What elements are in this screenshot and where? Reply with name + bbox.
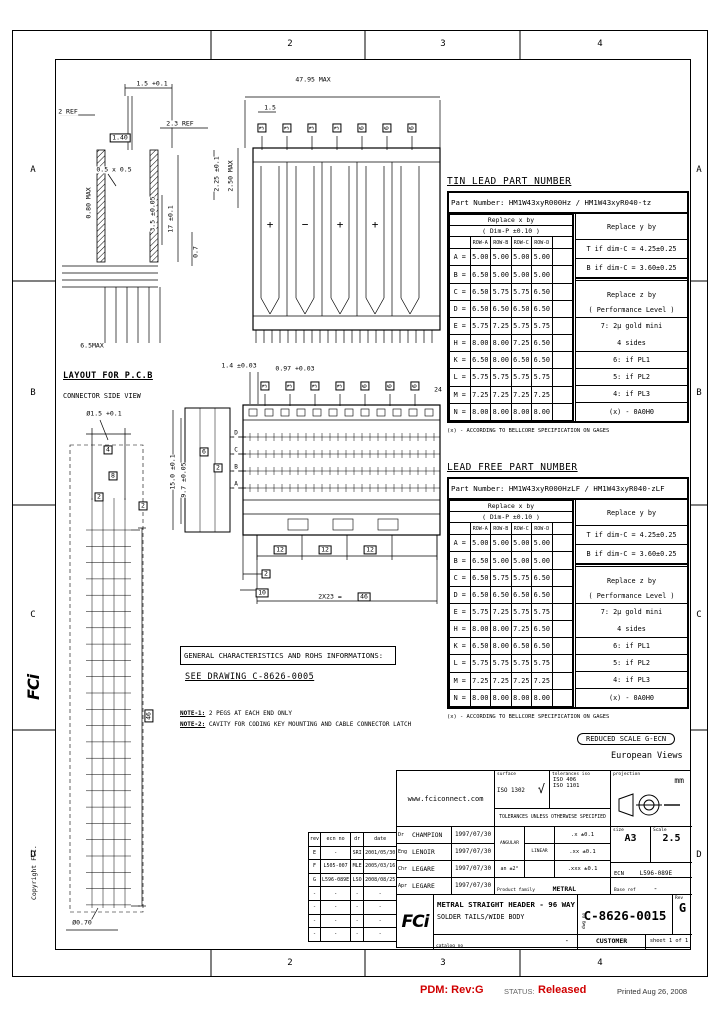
balloon-3: 3 bbox=[260, 382, 269, 391]
plating-row: 4 sides bbox=[576, 621, 687, 638]
signature-block: DrCHAMPION1997/07/30EngLENOIR1997/07/30C… bbox=[397, 827, 495, 895]
signature-date: 1997/07/30 bbox=[451, 861, 494, 877]
table-row: M =7.257.257.257.25 bbox=[450, 386, 573, 403]
table-cell: ROW-B bbox=[491, 523, 512, 535]
dim-46-vert: 46 bbox=[144, 710, 153, 723]
surface-label: surface bbox=[495, 771, 549, 777]
dim-chamfer: 0.5 x 0.5 bbox=[96, 166, 131, 173]
table-cell: L = bbox=[450, 369, 471, 386]
row-letter-c: C bbox=[234, 448, 238, 455]
zone-top-3: 3 bbox=[440, 39, 445, 49]
table-row: B =6.505.005.005.00 bbox=[450, 266, 573, 283]
table-cell: L = bbox=[450, 655, 471, 672]
plating-row: Replace z by bbox=[576, 574, 687, 589]
count-24: 24 bbox=[434, 386, 442, 393]
surface-cell: surface ISO 1302 √ bbox=[495, 771, 550, 809]
plating-row: 7: 2μ gold mini bbox=[576, 604, 687, 621]
connector-side-view-label: CONNECTOR SIDE VIEW bbox=[63, 392, 141, 400]
table-cell: 6.50 bbox=[470, 300, 491, 317]
base-ref-value: - bbox=[653, 885, 657, 893]
zone-top-4: 4 bbox=[597, 39, 602, 49]
balloon-3: 3 bbox=[335, 382, 344, 391]
european-views-label: European Views bbox=[611, 751, 683, 761]
dim-2-3-ref: 2.3 REF bbox=[166, 120, 193, 127]
table-row: M =7.257.257.257.25 bbox=[450, 672, 573, 689]
table-title: LEAD FREE PART NUMBER bbox=[447, 462, 689, 473]
website-text: www.fciconnect.com bbox=[408, 795, 484, 803]
polarity-plus-3: + bbox=[372, 219, 379, 231]
revision-header: rev bbox=[309, 833, 321, 847]
table-cell bbox=[552, 369, 573, 386]
sheet-size: A3 bbox=[611, 833, 650, 844]
rev-cell: Rev G bbox=[673, 895, 692, 935]
balloon-3: 3 bbox=[257, 124, 266, 133]
note-1-text: 2 PEGS AT EACH END ONLY bbox=[205, 710, 292, 717]
table-row: E =5.757.255.755.75 bbox=[450, 317, 573, 334]
plating-row: 4: if PL3 bbox=[576, 672, 687, 689]
revision-row: GL596-089ELSO2008/08/25 bbox=[309, 873, 397, 887]
note-2-label: NOTE-2: bbox=[180, 721, 205, 728]
revision-cell: - bbox=[351, 928, 364, 942]
table-cell: 5.75 bbox=[511, 369, 532, 386]
table-cell bbox=[450, 523, 471, 535]
revision-row: ---- bbox=[309, 914, 397, 928]
part-table-body: Replace x by( Dim-P ±0.10 )ROW-AROW-BROW… bbox=[449, 214, 687, 421]
table-row: H =8.008.007.256.50 bbox=[450, 621, 573, 638]
table-cell bbox=[552, 352, 573, 369]
catalog-value: - bbox=[565, 935, 569, 948]
table-row: D =6.506.506.506.50 bbox=[450, 586, 573, 603]
see-drawing-note: SEE DRAWING C-8626-0005 bbox=[185, 672, 314, 682]
table-cell: ROW-A bbox=[470, 237, 491, 249]
table-cell: 8.00 bbox=[491, 621, 512, 638]
revision-cell: - bbox=[364, 914, 397, 928]
ecn-label: ECN bbox=[614, 871, 624, 877]
table-cell: 5.75 bbox=[491, 655, 512, 672]
table-cell: 7.25 bbox=[491, 386, 512, 403]
bellcore-note: (x) - ACCORDING TO BELLCORE SPECIFICATIO… bbox=[447, 428, 689, 434]
revision-cell: - bbox=[351, 887, 364, 901]
signature-name: LEGARE bbox=[412, 866, 451, 873]
table-cell: C = bbox=[450, 569, 471, 586]
plating-column: Replace y byT if dim-C = 4.25±0.25B if d… bbox=[573, 214, 687, 421]
table-cell: H = bbox=[450, 335, 471, 352]
balloon-8-pcb: 8 bbox=[109, 471, 118, 480]
revision-cell: - bbox=[321, 914, 351, 928]
row-letter-d: D bbox=[234, 431, 238, 438]
signature-row: AprLEGARE1997/07/30 bbox=[397, 878, 494, 895]
signature-date: 1997/07/30 bbox=[451, 844, 494, 860]
balloon-2-pcb-2: 2 bbox=[139, 501, 148, 510]
table-cell: 5.00 bbox=[511, 535, 532, 552]
dim-0-80-max: 0.80 MAX bbox=[85, 187, 92, 218]
table-cell: 7.25 bbox=[491, 603, 512, 620]
table-cell: 5.00 bbox=[491, 535, 512, 552]
table-cell: ROW-C bbox=[511, 523, 532, 535]
dim-2-50-max: 2.50 MAX bbox=[227, 160, 234, 191]
signature-row: DrCHAMPION1997/07/30 bbox=[397, 827, 494, 844]
logo-cell: FCi bbox=[397, 895, 434, 949]
table-cell: 6.50 bbox=[511, 638, 532, 655]
projection-cell: projection mm bbox=[611, 771, 692, 827]
table-cell: A = bbox=[450, 249, 471, 266]
dim-1-40: 1.40 bbox=[110, 133, 131, 142]
dim-46-box: 46 bbox=[358, 592, 371, 601]
table-cell: 6.50 bbox=[491, 300, 512, 317]
tolerance-grid-cell bbox=[525, 861, 555, 878]
dim-12-1: 12 bbox=[274, 545, 287, 554]
balloon-6: 6 bbox=[200, 447, 209, 456]
table-cell: 5.00 bbox=[470, 249, 491, 266]
table-row: E =5.757.255.755.75 bbox=[450, 603, 573, 620]
plating-row: 4 sides bbox=[576, 335, 687, 352]
table-row: ( Dim-P ±0.10 ) bbox=[450, 512, 573, 523]
table-row: A =5.005.005.005.00 bbox=[450, 249, 573, 266]
table-cell: 5.75 bbox=[532, 603, 553, 620]
zone-right-B: B bbox=[696, 388, 701, 398]
balloon-6: 6 bbox=[410, 382, 419, 391]
part-number-row: Part Number: HM1W43xyR000Hz / HM1W43xyR0… bbox=[449, 193, 687, 214]
balloon-6: 6 bbox=[382, 124, 391, 133]
revision-header: ecn no bbox=[321, 833, 351, 847]
table-cell: 5.75 bbox=[470, 317, 491, 334]
table-cell: H = bbox=[450, 621, 471, 638]
table-cell: 5.00 bbox=[491, 266, 512, 283]
dim-9-7: 9.7 ±0.05 bbox=[180, 462, 187, 497]
table-cell: 5.75 bbox=[491, 283, 512, 300]
table-cell bbox=[552, 569, 573, 586]
table-cell: 5.75 bbox=[491, 569, 512, 586]
row-letter-a: A bbox=[234, 482, 238, 489]
plating-row bbox=[576, 278, 687, 288]
table-cell: 6.50 bbox=[470, 266, 491, 283]
table-cell: ROW-D bbox=[532, 523, 553, 535]
plating-row bbox=[576, 564, 687, 574]
dim-1-4: 1.4 ±0.03 bbox=[221, 362, 256, 369]
product-family: METRAL bbox=[553, 885, 576, 893]
table-row: ROW-AROW-BROW-CROW-D bbox=[450, 237, 573, 249]
signature-role: Dr bbox=[397, 832, 412, 838]
title-cell: METRAL STRAIGHT HEADER - 96 WAY SOLDER T… bbox=[434, 895, 578, 935]
plating-row: T if dim-C = 4.25±0.25 bbox=[576, 526, 687, 545]
third-angle-projection-icon bbox=[617, 791, 683, 821]
hole-dia-1-5: Ø1.5 +0.1 bbox=[86, 410, 121, 417]
table-row: L =5.755.755.755.75 bbox=[450, 369, 573, 386]
revision-cell: - bbox=[321, 846, 351, 860]
drawing-number: C-8626-0015 bbox=[578, 908, 672, 923]
revision-cell: F bbox=[309, 860, 321, 874]
signature-role: Eng bbox=[397, 849, 412, 855]
dwg-no-label: dwg no bbox=[582, 913, 587, 929]
dim-3-5: 3.5 ±0.05 bbox=[149, 196, 156, 231]
balloon-3: 3 bbox=[285, 382, 294, 391]
signature-role: Apr bbox=[397, 883, 412, 889]
table-cell: 8.00 bbox=[511, 403, 532, 420]
scale-cell: Scale 2.5 bbox=[651, 827, 692, 863]
table-cell: 8.00 bbox=[532, 689, 553, 706]
dim-15-0: 15.0 ±0.1 bbox=[169, 454, 176, 489]
signature-date: 1997/07/30 bbox=[451, 827, 494, 843]
table-cell bbox=[552, 317, 573, 334]
catalog-cell: catalog no - bbox=[434, 935, 578, 949]
table-cell: 6.50 bbox=[491, 586, 512, 603]
general-characteristics-note: GENERAL CHARACTERISTICS AND ROHS INFORMA… bbox=[180, 646, 396, 665]
table-row: A =5.005.005.005.00 bbox=[450, 535, 573, 552]
table-cell bbox=[552, 237, 573, 249]
table-cell: 6.50 bbox=[532, 569, 553, 586]
plating-row: Replace y by bbox=[576, 214, 687, 240]
balloon-3: 3 bbox=[282, 124, 291, 133]
row-letter-b: B bbox=[234, 465, 238, 472]
table-cell: 8.00 bbox=[470, 689, 491, 706]
table-cell: 7.25 bbox=[532, 386, 553, 403]
table-cell bbox=[552, 403, 573, 420]
zone-top-2: 2 bbox=[287, 39, 292, 49]
table-cell: 5.75 bbox=[511, 603, 532, 620]
table-cell: M = bbox=[450, 672, 471, 689]
table-cell bbox=[552, 266, 573, 283]
table-cell: 6.50 bbox=[532, 300, 553, 317]
table-cell: K = bbox=[450, 638, 471, 655]
note-2: NOTE-2: CAVITY FOR CODING KEY MOUNTING A… bbox=[180, 721, 411, 728]
zone-bottom-4: 4 bbox=[597, 958, 602, 968]
linear-tolerance: .x ±0.1 bbox=[555, 827, 611, 844]
balloon-6: 6 bbox=[360, 382, 369, 391]
revision-header: date bbox=[364, 833, 397, 847]
table-cell: M = bbox=[450, 386, 471, 403]
fci-logo: FCi bbox=[402, 912, 429, 932]
table-cell: 8.00 bbox=[491, 352, 512, 369]
table-cell: 7.25 bbox=[511, 672, 532, 689]
table-cell: C = bbox=[450, 283, 471, 300]
table-cell bbox=[552, 621, 573, 638]
table-cell bbox=[552, 523, 573, 535]
table-title: TIN LEAD PART NUMBER bbox=[447, 176, 689, 187]
table-cell: 7.25 bbox=[511, 621, 532, 638]
table-cell: 6.50 bbox=[511, 352, 532, 369]
balloon-6: 6 bbox=[357, 124, 366, 133]
tolerance-note: TOLERANCES UNLESS OTHERWISE SPECIFIED bbox=[495, 809, 611, 827]
revision-cell: 2008/08/25 bbox=[364, 873, 397, 887]
table-row: K =6.508.006.506.50 bbox=[450, 352, 573, 369]
table-cell: 6.50 bbox=[470, 352, 491, 369]
table-cell: 5.00 bbox=[532, 552, 553, 569]
pdm-rev-text: PDM: Rev:G bbox=[420, 984, 484, 996]
table-cell: 5.00 bbox=[511, 552, 532, 569]
table-cell: ROW-C bbox=[511, 237, 532, 249]
table-row: Replace x by bbox=[450, 215, 573, 226]
table-cell bbox=[552, 552, 573, 569]
revision-header-row: revecn nodrdate bbox=[309, 833, 397, 847]
dim-p-table: Replace x by( Dim-P ±0.10 )ROW-AROW-BROW… bbox=[449, 500, 573, 707]
customer-cell: CUSTOMER bbox=[578, 935, 646, 949]
table-cell: 6.50 bbox=[470, 586, 491, 603]
table-cell bbox=[552, 249, 573, 266]
revision-row: ---- bbox=[309, 928, 397, 942]
revision-cell: - bbox=[309, 928, 321, 942]
table-row: ROW-AROW-BROW-CROW-D bbox=[450, 523, 573, 535]
linear-tolerance: .xxx ±0.1 bbox=[555, 861, 611, 878]
table-cell: 5.75 bbox=[470, 369, 491, 386]
table-cell: ROW-D bbox=[532, 237, 553, 249]
table-cell: 7.25 bbox=[491, 317, 512, 334]
plating-row: (x) - 0A0H0 bbox=[576, 403, 687, 421]
table-cell: ROW-B bbox=[491, 237, 512, 249]
table-row: L =5.755.755.755.75 bbox=[450, 655, 573, 672]
table-cell: 5.00 bbox=[532, 535, 553, 552]
dim-pitch-tol: 1.5 +0.1 bbox=[136, 80, 167, 87]
table-cell: 5.00 bbox=[532, 266, 553, 283]
dim-2-ref: 2 REF bbox=[58, 108, 78, 115]
table-cell: 7.25 bbox=[532, 672, 553, 689]
part-number-row: Part Number: HM1W43xyR000HzLF / HM1W43xy… bbox=[449, 479, 687, 500]
table-cell: 7.25 bbox=[491, 672, 512, 689]
revision-cell: - bbox=[309, 900, 321, 914]
angular-tolerance: an ±2° bbox=[495, 861, 525, 878]
dim-overall-width: 47.95 MAX bbox=[295, 76, 330, 83]
catalog-label: catalog no bbox=[436, 944, 463, 949]
signature-name: LENOIR bbox=[412, 849, 451, 856]
table-row: K =6.508.006.506.50 bbox=[450, 638, 573, 655]
table-cell: 6.50 bbox=[470, 569, 491, 586]
signature-name: CHAMPION bbox=[412, 832, 451, 839]
plating-row: ( Performance Level ) bbox=[576, 303, 687, 318]
dim-2-end: 2 bbox=[262, 569, 271, 578]
table-cell: 5.00 bbox=[470, 535, 491, 552]
table-cell: N = bbox=[450, 403, 471, 420]
table-cell: E = bbox=[450, 603, 471, 620]
polarity-plus-1: + bbox=[267, 219, 274, 231]
revision-cell: E bbox=[309, 846, 321, 860]
table-cell: 5.00 bbox=[491, 249, 512, 266]
plating-row: 7: 2μ gold mini bbox=[576, 318, 687, 335]
table-cell: ( Dim-P ±0.10 ) bbox=[450, 512, 573, 523]
balloon-6: 6 bbox=[385, 382, 394, 391]
status-value: Released bbox=[538, 984, 586, 996]
table-cell: 6.50 bbox=[532, 352, 553, 369]
plating-row: (x) - 0A0H0 bbox=[576, 689, 687, 707]
ecn-cell: ECN L596-089E bbox=[611, 863, 692, 878]
table-cell: 6.50 bbox=[511, 586, 532, 603]
surface-finish-icon: √ bbox=[538, 782, 545, 796]
table-cell: 5.00 bbox=[532, 249, 553, 266]
part-table-body: Replace x by( Dim-P ±0.10 )ROW-AROW-BROW… bbox=[449, 500, 687, 707]
balloon-3: 3 bbox=[307, 124, 316, 133]
revision-cell: 2001/05/30 bbox=[364, 846, 397, 860]
table-cell: 8.00 bbox=[470, 403, 491, 420]
table-cell: Replace x by bbox=[450, 501, 573, 512]
revision-cell: - bbox=[364, 900, 397, 914]
revision-cell: - bbox=[321, 887, 351, 901]
fci-logo-margin: FCi bbox=[24, 675, 43, 700]
revision-letter: G bbox=[673, 901, 692, 915]
bellcore-note: (x) - ACCORDING TO BELLCORE SPECIFICATIO… bbox=[447, 714, 689, 720]
table-cell: 6.50 bbox=[532, 283, 553, 300]
product-family-label: Product family bbox=[497, 888, 535, 893]
dim-pitch: 1.5 bbox=[264, 104, 276, 111]
pcb-layout-title: LAYOUT FOR P.C.B bbox=[63, 371, 153, 381]
table-row: H =8.008.007.256.50 bbox=[450, 335, 573, 352]
polarity-plus-2: + bbox=[337, 219, 344, 231]
base-ref-label: Base ref bbox=[614, 888, 636, 893]
balloon-2: 2 bbox=[214, 463, 223, 472]
revision-row: ---- bbox=[309, 900, 397, 914]
table-cell: 5.00 bbox=[511, 266, 532, 283]
signature-row: ChrLEGARE1997/07/30 bbox=[397, 861, 494, 878]
dim-12-2: 12 bbox=[319, 545, 332, 554]
table-cell: K = bbox=[450, 352, 471, 369]
table-cell: 5.75 bbox=[491, 369, 512, 386]
revision-cell: - bbox=[321, 900, 351, 914]
table-cell bbox=[552, 586, 573, 603]
plating-row: 6: if PL1 bbox=[576, 638, 687, 655]
table-cell: 5.00 bbox=[511, 249, 532, 266]
table-cell: 5.75 bbox=[470, 655, 491, 672]
balloon-4-pcb: 4 bbox=[104, 445, 113, 454]
table-cell: 8.00 bbox=[491, 335, 512, 352]
table-cell: 8.00 bbox=[532, 403, 553, 420]
tolerance-standard-cell: tolerances iso ISO 406 ISO 1101 bbox=[550, 771, 611, 809]
table-row: D =6.506.506.506.50 bbox=[450, 300, 573, 317]
dim-0-97: 0.97 +0.03 bbox=[275, 365, 314, 372]
plating-row: 6: if PL1 bbox=[576, 352, 687, 369]
table-cell bbox=[552, 535, 573, 552]
note-2-text: CAVITY FOR CODING KEY MOUNTING AND CABLE… bbox=[205, 721, 411, 728]
polarity-minus: − bbox=[302, 219, 309, 231]
dim-2-25: 2.25 ±0.1 bbox=[213, 156, 220, 191]
dim-0-7: 0.7 bbox=[192, 246, 199, 258]
table-cell: 5.75 bbox=[511, 655, 532, 672]
table-row: B =6.505.005.005.00 bbox=[450, 552, 573, 569]
revision-cell: L596-089E bbox=[321, 873, 351, 887]
revision-cell: L505-007 bbox=[321, 860, 351, 874]
revision-cell: - bbox=[351, 914, 364, 928]
balloon-3: 3 bbox=[310, 382, 319, 391]
revision-header: dr bbox=[351, 833, 364, 847]
table-cell bbox=[552, 672, 573, 689]
size-cell: size A3 bbox=[611, 827, 651, 863]
table-cell: 8.00 bbox=[491, 638, 512, 655]
table-cell: 5.75 bbox=[532, 317, 553, 334]
table-cell: ROW-A bbox=[470, 523, 491, 535]
revision-cell: - bbox=[364, 887, 397, 901]
revision-cell: SRI bbox=[351, 846, 364, 860]
dim-12-3: 12 bbox=[364, 545, 377, 554]
units-label: mm bbox=[674, 776, 684, 785]
dim-2x23: 2X23 = bbox=[318, 593, 341, 600]
table-cell: B = bbox=[450, 552, 471, 569]
revision-cell: - bbox=[321, 928, 351, 942]
hole-dia-0-70: Ø0.70 bbox=[72, 919, 92, 926]
note-1-label: NOTE-1: bbox=[180, 710, 205, 717]
surface-standard: ISO 1302 bbox=[495, 788, 525, 794]
plating-row: 5: if PL2 bbox=[576, 655, 687, 672]
table-cell: 7.25 bbox=[511, 335, 532, 352]
scale-value: 2.5 bbox=[651, 833, 692, 844]
dim-10: 10 bbox=[256, 588, 269, 597]
table-cell: D = bbox=[450, 300, 471, 317]
table-cell: A = bbox=[450, 535, 471, 552]
revision-row: ---- bbox=[309, 887, 397, 901]
plating-row: ( Performance Level ) bbox=[576, 589, 687, 604]
tolerance-grid-cell bbox=[525, 827, 555, 844]
part-table-frame: Part Number: HM1W43xyR000Hz / HM1W43xyR0… bbox=[447, 191, 689, 423]
tin-lead-part-number-table: TIN LEAD PART NUMBERPart Number: HM1W43x… bbox=[447, 176, 689, 434]
balloon-6: 6 bbox=[407, 124, 416, 133]
part-table-frame: Part Number: HM1W43xyR000HzLF / HM1W43xy… bbox=[447, 477, 689, 709]
table-cell bbox=[552, 655, 573, 672]
table-cell bbox=[552, 603, 573, 620]
